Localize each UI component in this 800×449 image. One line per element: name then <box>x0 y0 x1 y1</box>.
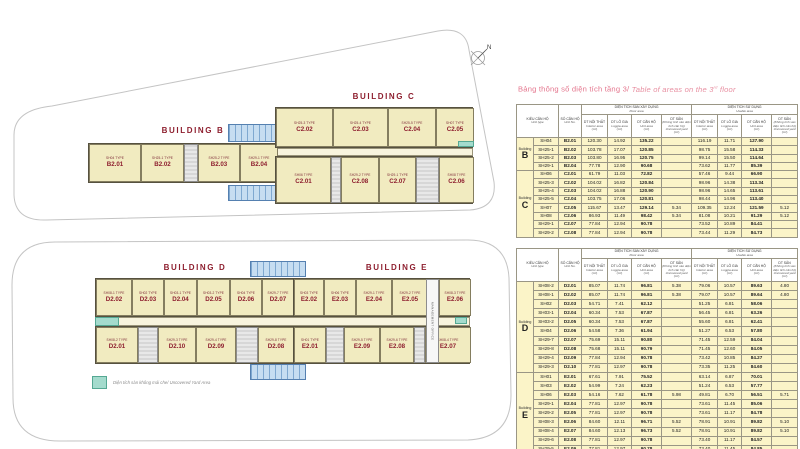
area-value-cell: 73.35 <box>692 363 718 372</box>
area-value-cell: 10.91 <box>718 418 742 427</box>
area-value-cell: 7.24 <box>608 382 632 391</box>
sub-header: DT CĂN HỘUnit area(m²) <box>632 259 662 282</box>
unit-cell: SH08 TYPEC2.06 <box>439 157 474 203</box>
area-value-cell: 77.81 <box>582 363 608 372</box>
unit-cell: SH29-1 TYPEB2.04 <box>240 144 278 182</box>
area-value-cell: 51.27 <box>692 327 718 336</box>
unit-type-cell: SH29-1 <box>534 220 559 228</box>
area-value-cell: 73.40 <box>692 445 718 449</box>
unit-code: B2.01 <box>107 161 124 168</box>
area-value-cell <box>772 318 798 327</box>
area-value-cell: 96.81 <box>632 282 662 291</box>
unit-no-cell: E2.05 <box>559 409 582 418</box>
unit-code: D2.02 <box>106 296 123 303</box>
sub-header: DT NỘI THẤTInterior area(m²) <box>582 259 608 282</box>
header-en: Unit No. <box>559 121 581 124</box>
area-value-cell: 84.60 <box>582 418 608 427</box>
area-value-cell: 114.33 <box>742 146 772 154</box>
unit-type-cell: SH04 <box>534 138 559 146</box>
area-value-cell: 75.52 <box>632 372 662 381</box>
area-value-cell: 66.90 <box>742 171 772 179</box>
area-value-cell: 11.74 <box>608 282 632 291</box>
unit-cell: SH01 TYPEE2.01 <box>294 327 326 363</box>
area-value-cell: 55.60 <box>692 318 718 327</box>
area-value-cell: 98.44 <box>692 196 718 204</box>
table-row: SH06E2.0354.167.6261.785.9849.816.7056.5… <box>517 391 798 400</box>
usable-area-group-header: DIỆN TÍCH SỬ DỤNGUsable area <box>692 105 798 115</box>
area-value-cell: 96.71 <box>632 418 662 427</box>
area-value-cell: 7.62 <box>608 391 632 400</box>
unit-cell: SH08-3 TYPEE2.06 <box>439 279 471 316</box>
area-value-cell: 115.67 <box>582 204 608 212</box>
areas-table-de: KIỂU CĂN HỘUnit typeSỐ CĂN HỘUnit No.DIỆ… <box>516 248 798 449</box>
unit-code: E2.05 <box>402 296 418 303</box>
area-value-cell: 12.13 <box>608 427 632 436</box>
table-row: SH07C2.05115.6713.47129.145.34109.3512.2… <box>517 204 798 212</box>
area-value-cell: 6.70 <box>718 391 742 400</box>
area-value-cell: 12.59 <box>718 336 742 345</box>
unit-no-cell: D2.02 <box>559 291 582 300</box>
area-value-cell: 62.23 <box>632 382 662 391</box>
area-value-cell: 71.45 <box>692 336 718 345</box>
unit-type-cell: SH08-4 <box>534 427 559 436</box>
area-value-cell: 89.63 <box>742 282 772 291</box>
area-value-cell: 12.94 <box>608 229 632 237</box>
table-row: SH29-1C2.0777.8412.9490.7873.5210.8984.4… <box>517 220 798 228</box>
area-value-cell: 10.85 <box>718 354 742 363</box>
area-value-cell: 120.30 <box>582 138 608 146</box>
unit-type-cell: SH25-1 <box>534 146 559 154</box>
building-d-title: BUILDING D <box>140 263 250 272</box>
area-value-cell: 90.78 <box>632 229 662 237</box>
sub-header: DT NỘI THẤTInterior area(m²) <box>582 115 608 138</box>
sub-header: DT LÔ GIALoggia area(m²) <box>718 115 742 138</box>
table-row: SH03-2D2.0560.347.5367.8755.606.8162.41 <box>517 318 798 327</box>
area-value-cell <box>662 220 692 228</box>
unit-code: E2.03 <box>332 296 348 303</box>
table-row: SH02D2.0354.717.4162.1251.256.8158.06 <box>517 300 798 309</box>
area-value-cell: 12.97 <box>608 445 632 449</box>
area-value-cell: 84.27 <box>742 354 772 363</box>
unit-type-cell: SH29-6 <box>534 436 559 445</box>
area-value-cell: 12.97 <box>608 400 632 409</box>
area-value-cell: 84.57 <box>742 436 772 445</box>
header-en: Unit type <box>517 265 558 268</box>
area-value-cell: 103.78 <box>582 146 608 154</box>
area-value-cell <box>772 345 798 354</box>
area-value-cell: 84.41 <box>742 220 772 228</box>
area-value-cell: 85.07 <box>582 282 608 291</box>
table-row: BuildingESH01E2.0167.617.9175.5263.146.8… <box>517 372 798 381</box>
unit-no-cell: C2.05 <box>559 204 582 212</box>
area-value-cell <box>662 162 692 170</box>
area-value-cell: 90.79 <box>632 345 662 354</box>
unit-cell: SH29-7 TYPED2.07 <box>262 279 294 316</box>
building-c-top-units-row: SH25-3 TYPEC2.02SH25-4 TYPEC2.03SH25-5 T… <box>275 107 473 148</box>
area-value-cell: 16.88 <box>608 187 632 195</box>
unit-cell: SH29-5 TYPEE2.09 <box>344 327 380 363</box>
area-value-cell: 73.40 <box>692 436 718 445</box>
area-value-cell: 54.71 <box>582 300 608 309</box>
area-value-cell: 13.47 <box>608 204 632 212</box>
area-value-cell: 103.75 <box>582 196 608 204</box>
header-en: Usable area <box>692 254 797 257</box>
area-value-cell: 5.12 <box>772 204 798 212</box>
area-value-cell <box>662 363 692 372</box>
area-value-cell: 5.34 <box>662 212 692 220</box>
area-value-cell: 91.29 <box>742 212 772 220</box>
area-value-cell: 98.96 <box>692 179 718 187</box>
unit-no-cell: D2.06 <box>559 327 582 336</box>
area-value-cell: 85.39 <box>742 162 772 170</box>
unit-cell: SH25-3 TYPEC2.02 <box>276 108 333 147</box>
area-value-cell: 98.75 <box>692 146 718 154</box>
unit-type-cell: SH01 <box>534 372 559 381</box>
building-cell: BuildingB <box>517 138 534 171</box>
unit-no-cell: B2.04 <box>559 162 582 170</box>
compass-icon: N <box>471 45 491 65</box>
area-value-cell: 85.07 <box>582 291 608 300</box>
area-value-cell: 54.99 <box>582 382 608 391</box>
canopy-hatch <box>250 364 306 380</box>
unit-no-cell: D2.01 <box>559 282 582 291</box>
area-value-cell: 11.45 <box>718 400 742 409</box>
area-value-cell: 127.90 <box>742 138 772 146</box>
area-value-cell: 6.81 <box>718 309 742 318</box>
area-value-cell: 58.06 <box>742 300 772 309</box>
brochure-page: N BUILDING B BUILDING C SH04 TYPEB2.01SH… <box>0 0 800 449</box>
building-d-bottom-units-row: SH08-2 TYPED2.01SH29-3 TYPED2.10SH29-4 T… <box>95 326 293 364</box>
area-value-cell: 120.85 <box>632 146 662 154</box>
unit-type-cell: SH08-3 <box>534 418 559 427</box>
stair-core <box>331 157 341 203</box>
table-row: SH25-1B2.02103.7817.07120.8598.7515.5811… <box>517 146 798 154</box>
area-value-cell: 6.53 <box>718 327 742 336</box>
area-value-cell: 73.62 <box>692 162 718 170</box>
table-row: BuildingDSH08-2D2.0185.0711.7496.815.387… <box>517 282 798 291</box>
sub-header: DT CĂN HỘUnit area(m²) <box>632 115 662 138</box>
table-row: SH08-1D2.0285.0711.7496.815.3879.0710.57… <box>517 291 798 300</box>
area-value-cell <box>772 179 798 187</box>
unit-type-cell: SH29-8 <box>534 345 559 354</box>
building-letter: E <box>517 411 533 420</box>
unit-type-cell: SH06 <box>534 391 559 400</box>
area-value-cell: 11.03 <box>608 171 632 179</box>
header-en: Floor area <box>582 110 691 113</box>
area-value-cell <box>772 436 798 445</box>
table-row: SH29-7D2.0775.6915.1190.8071.4512.5984.0… <box>517 336 798 345</box>
unit-type-cell: SH29-3 <box>534 363 559 372</box>
area-value-cell: 56.45 <box>692 309 718 318</box>
built-area-group-header: DIỆN TÍCH SÀN XÂY DỰNGFloor area <box>582 105 692 115</box>
area-value-cell: 86.93 <box>582 212 608 220</box>
area-value-cell: 11.29 <box>718 229 742 237</box>
header-unit: (m²) <box>608 128 631 131</box>
area-value-cell: 84.73 <box>742 229 772 237</box>
unit-cell: SH25-4 TYPEC2.03 <box>333 108 388 147</box>
area-value-cell <box>662 445 692 449</box>
unit-type-cell: SH07 <box>534 204 559 212</box>
unit-type-cell: SH03-1 <box>534 309 559 318</box>
building-b-units-row: SH04 TYPEB2.01SH25-1 TYPEB2.02SH25-2 TYP… <box>88 143 277 183</box>
area-value-cell: 114.64 <box>742 154 772 162</box>
unit-type-cell: SH04 <box>534 327 559 336</box>
area-value-cell <box>662 138 692 146</box>
area-value-cell: 6.81 <box>718 318 742 327</box>
unit-cell: SH29-2 TYPEC2.08 <box>341 157 379 203</box>
area-value-cell <box>772 162 798 170</box>
unit-code: C2.06 <box>448 178 465 185</box>
area-value-cell <box>662 409 692 418</box>
area-value-cell: 77.81 <box>582 445 608 449</box>
header-unit: (m²) <box>632 272 661 275</box>
table-title-vi: Bảng thông số diện tích tầng 3/ <box>518 85 629 94</box>
unit-no-cell: C2.07 <box>559 220 582 228</box>
unit-no-cell: D2.07 <box>559 336 582 345</box>
area-value-cell <box>662 327 692 336</box>
unit-no-cell: E2.09 <box>559 445 582 449</box>
area-value-cell: 67.87 <box>632 309 662 318</box>
area-value-cell <box>662 372 692 381</box>
area-value-cell: 77.84 <box>582 229 608 237</box>
table-row: SH29-3D2.1077.8112.9790.7873.3511.2584.6… <box>517 363 798 372</box>
area-value-cell: 14.92 <box>608 138 632 146</box>
unit-cell: SH03-2 TYPED2.05 <box>197 279 230 316</box>
unit-cell: SH04 TYPED2.06 <box>230 279 262 316</box>
table-row: SH29-4D2.0977.8412.9490.7873.4210.8584.2… <box>517 354 798 363</box>
unit-type-cell: SH25-4 <box>534 187 559 195</box>
sub-header: DT SÂN(Không tính vào diện tích căn hộ) … <box>772 115 798 138</box>
header-unit: (m²) <box>662 131 691 134</box>
area-value-cell <box>662 382 692 391</box>
uncovered-yard-patch <box>95 317 119 326</box>
table-title: Bảng thông số diện tích tầng 3/ Table of… <box>518 84 736 94</box>
area-value-cell: 75.68 <box>582 345 608 354</box>
sub-header: DT SÂN(Không tính vào diện tích căn hộ) … <box>662 115 692 138</box>
header-unit: (m²) <box>718 272 741 275</box>
area-value-cell: 90.78 <box>632 445 662 449</box>
table-row: SH29-1E2.0477.8112.9790.7873.6111.4585.0… <box>517 400 798 409</box>
area-value-cell: 116.19 <box>692 138 718 146</box>
area-value-cell: 56.51 <box>742 391 772 400</box>
area-value-cell: 90.78 <box>632 436 662 445</box>
area-value-cell: 77.81 <box>582 409 608 418</box>
area-value-cell: 10.91 <box>718 427 742 436</box>
area-value-cell: 60.34 <box>582 318 608 327</box>
sub-header: DT LÔ GIALoggia area(m²) <box>608 259 632 282</box>
area-value-cell <box>772 372 798 381</box>
table-row: SH29-8D2.0875.6815.1190.7971.4512.6084.0… <box>517 345 798 354</box>
building-letter: B <box>517 151 533 160</box>
area-value-cell: 5.38 <box>662 282 692 291</box>
sub-header: DT NỘI THẤTInterior area(m²) <box>692 259 718 282</box>
area-value-cell: 10.57 <box>718 291 742 300</box>
unit-cell: SH03 TYPEE2.02 <box>294 279 324 316</box>
unit-no-cell: E2.01 <box>559 372 582 381</box>
area-value-cell: 120.90 <box>632 187 662 195</box>
unit-type-cell: SH29-5 <box>534 445 559 449</box>
sub-header: DT NỘI THẤTInterior area(m²) <box>692 115 718 138</box>
unit-code: C2.08 <box>352 178 369 185</box>
unit-type-cell: SH03 <box>534 382 559 391</box>
area-value-cell: 12.97 <box>608 409 632 418</box>
area-value-cell: 90.78 <box>632 363 662 372</box>
area-value-cell: 77.78 <box>582 162 608 170</box>
area-value-cell: 78.91 <box>692 427 718 436</box>
area-value-cell <box>772 171 798 179</box>
management-office-cell: MANAGEMENT OFFICE <box>426 279 439 363</box>
area-value-cell: 5.71 <box>772 391 798 400</box>
area-value-cell: 113.34 <box>742 179 772 187</box>
area-value-cell: 62.41 <box>742 318 772 327</box>
unit-cell: SH29-1 TYPEE2.04 <box>356 279 392 316</box>
unit-no-cell: C2.03 <box>559 187 582 195</box>
unit-cell: SH04 TYPEB2.01 <box>89 144 141 182</box>
unit-no-header: SỐ CĂN HỘUnit No. <box>559 105 582 138</box>
unit-code: D2.06 <box>238 296 255 303</box>
area-value-cell: 5.38 <box>662 291 692 300</box>
sub-header: DT SÂN(Không tính vào diện tích căn hộ) … <box>772 259 798 282</box>
area-value-cell: 5.10 <box>772 427 798 436</box>
area-value-cell: 63.26 <box>742 309 772 318</box>
area-value-cell: 16.82 <box>608 179 632 187</box>
area-value-cell: 67.61 <box>582 372 608 381</box>
area-value-cell: 120.84 <box>632 179 662 187</box>
area-value-cell: 17.07 <box>608 146 632 154</box>
area-value-cell: 10.57 <box>718 282 742 291</box>
unit-cell: SH03-1 TYPED2.04 <box>164 279 197 316</box>
table-row: SH25-5C2.04103.7517.06120.8198.4414.9611… <box>517 196 798 204</box>
area-value-cell <box>772 146 798 154</box>
unit-type-cell: SH29-2 <box>534 229 559 237</box>
area-value-cell: 15.11 <box>608 345 632 354</box>
unit-cell: SH29-8 TYPED2.08 <box>258 327 294 363</box>
sub-header: DT CĂN HỘUnit area(m²) <box>742 259 772 282</box>
canopy-hatch <box>250 261 306 277</box>
unit-no-cell: C2.02 <box>559 179 582 187</box>
area-value-cell: 7.41 <box>608 300 632 309</box>
unit-no-cell: E2.07 <box>559 427 582 436</box>
area-value-cell: 12.11 <box>608 418 632 427</box>
area-value-cell: 71.45 <box>692 345 718 354</box>
area-value-cell: 11.71 <box>718 138 742 146</box>
area-value-cell: 135.22 <box>632 138 662 146</box>
area-value-cell: 49.81 <box>692 391 718 400</box>
area-value-cell: 11.74 <box>608 291 632 300</box>
unit-cell: SH06 TYPEE2.03 <box>324 279 356 316</box>
unit-code: E2.04 <box>366 296 382 303</box>
area-value-cell: 7.36 <box>608 327 632 336</box>
area-value-cell <box>662 336 692 345</box>
unit-no-cell: E2.06 <box>559 418 582 427</box>
stair-core <box>416 157 439 203</box>
area-value-cell: 57.80 <box>742 327 772 336</box>
area-value-cell: 12.90 <box>608 162 632 170</box>
area-value-cell: 61.79 <box>582 171 608 179</box>
unit-cell: SH29-4 TYPED2.09 <box>196 327 236 363</box>
unit-code: D2.04 <box>172 296 189 303</box>
unit-cell: SH29-2 TYPEE2.05 <box>392 279 428 316</box>
area-value-cell: 7.53 <box>608 318 632 327</box>
area-value-cell: 60.34 <box>582 309 608 318</box>
unit-no-cell: C2.04 <box>559 196 582 204</box>
area-value-cell: 5.34 <box>662 204 692 212</box>
area-value-cell <box>772 196 798 204</box>
unit-type-cell: SH29-2 <box>534 409 559 418</box>
unit-no-cell: D2.03 <box>559 300 582 309</box>
area-value-cell: 17.06 <box>608 196 632 204</box>
unit-code: E2.09 <box>354 343 370 350</box>
area-value-cell: 11.45 <box>718 445 742 449</box>
unit-cell: SH25-5 TYPEC2.04 <box>388 108 436 147</box>
area-value-cell: 79.07 <box>692 291 718 300</box>
sub-header: DT LÔ GIALoggia area(m²) <box>608 115 632 138</box>
area-value-cell <box>772 382 798 391</box>
unit-no-cell: D2.10 <box>559 363 582 372</box>
unit-type-header: KIỂU CĂN HỘUnit type <box>517 249 559 282</box>
area-value-cell: 54.16 <box>582 391 608 400</box>
unit-code: B2.04 <box>251 161 268 168</box>
area-value-cell: 11.49 <box>608 212 632 220</box>
area-value-cell <box>662 196 692 204</box>
area-value-cell: 51.25 <box>692 300 718 309</box>
header-unit: (m²) <box>742 128 771 131</box>
unit-no-cell: E2.03 <box>559 391 582 400</box>
unit-code: D2.09 <box>208 343 225 350</box>
table-row: SH25-3C2.02104.0216.82120.8498.9614.3811… <box>517 179 798 187</box>
area-value-cell: 103.80 <box>582 154 608 162</box>
area-value-cell: 81.08 <box>692 212 718 220</box>
unit-no-header: SỐ CĂN HỘUnit No. <box>559 249 582 282</box>
area-value-cell: 84.85 <box>742 445 772 449</box>
corridor <box>275 148 473 156</box>
unit-type-cell: SH08-1 <box>534 291 559 300</box>
unit-type-cell: SH29-1 <box>534 400 559 409</box>
table-row: SH25-4C2.03104.0216.88120.9098.9614.6511… <box>517 187 798 195</box>
area-value-cell <box>772 354 798 363</box>
area-value-cell: 90.78 <box>632 409 662 418</box>
area-value-cell: 5.98 <box>662 391 692 400</box>
area-value-cell: 10.21 <box>718 212 742 220</box>
header-unit: (m²) <box>632 128 661 131</box>
area-value-cell: 12.60 <box>718 345 742 354</box>
area-value-cell: 14.96 <box>718 196 742 204</box>
building-e-title: BUILDING E <box>342 263 452 272</box>
area-value-cell <box>772 336 798 345</box>
area-value-cell: 7.53 <box>608 309 632 318</box>
building-e-top-units-row: SH03 TYPEE2.02SH06 TYPEE2.03SH29-1 TYPEE… <box>293 278 470 317</box>
area-value-cell: 77.81 <box>582 400 608 409</box>
areas-table-bc: KIỂU CĂN HỘUnit typeSỐ CĂN HỘUnit No.DIỆ… <box>516 104 798 238</box>
unit-no-cell: B2.03 <box>559 154 582 162</box>
area-value-cell: 89.82 <box>742 418 772 427</box>
unit-type-cell: SH02 <box>534 300 559 309</box>
unit-code: C2.04 <box>404 126 421 133</box>
area-value-cell <box>772 187 798 195</box>
area-value-cell: 6.53 <box>718 382 742 391</box>
unit-code: D2.01 <box>109 343 126 350</box>
building-cell: BuildingD <box>517 282 534 373</box>
header-en: Unit type <box>517 121 558 124</box>
unit-code: D2.03 <box>140 296 157 303</box>
area-value-cell <box>662 309 692 318</box>
building-d-top-units-row: SH08-1 TYPED2.02SH02 TYPED2.03SH03-1 TYP… <box>95 278 293 317</box>
unit-type-cell: SH25-5 <box>534 196 559 204</box>
area-value-cell: 75.69 <box>582 336 608 345</box>
area-value-cell: 89.82 <box>742 427 772 436</box>
area-value-cell: 99.14 <box>692 154 718 162</box>
area-value-cell <box>662 154 692 162</box>
